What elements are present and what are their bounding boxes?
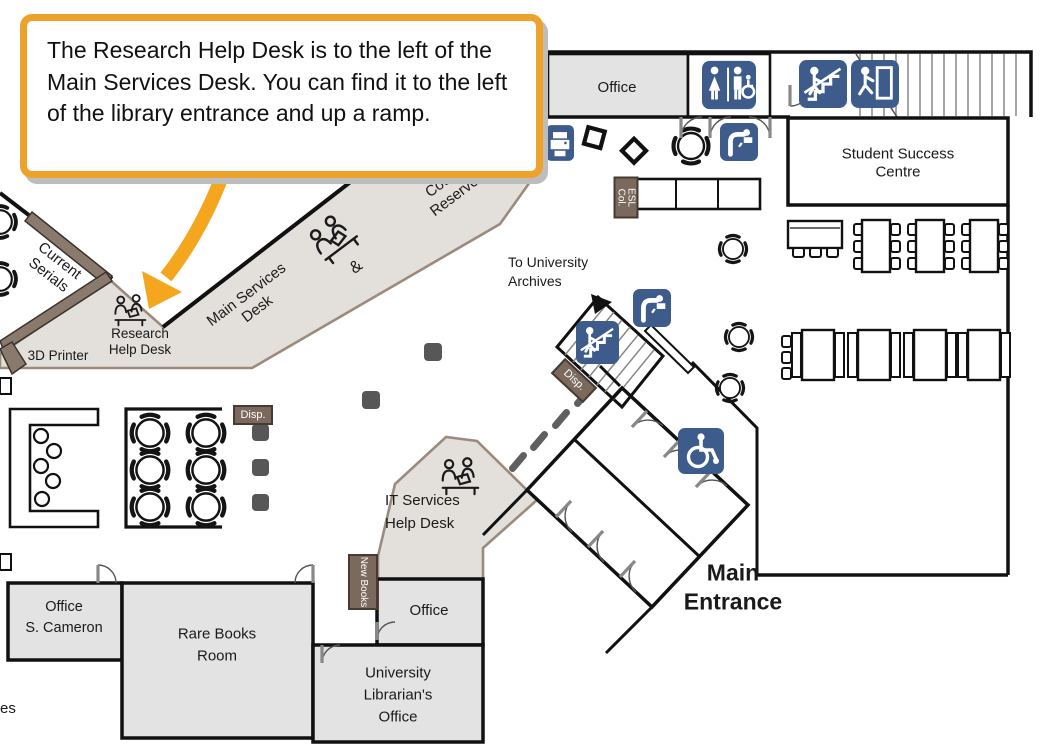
it-services-help-desk-label: IT Services Help Desk: [385, 490, 460, 535]
queue-path-dashes: [513, 391, 589, 469]
round-table: [674, 129, 709, 164]
rare-books-room-label: Rare Books Room: [178, 623, 256, 667]
student-success-centre-label: Student Success Centre: [842, 145, 955, 180]
esl-collection-shelf: [634, 179, 760, 209]
round-table: [0, 206, 16, 238]
wheelchair-accessible-icon: [678, 428, 724, 474]
stairs-icon: [799, 60, 847, 108]
partial-label: es: [0, 700, 16, 718]
round-table: [132, 452, 168, 488]
bench-table: [782, 330, 844, 380]
research-help-desk-label: Research Help Desk: [109, 326, 171, 358]
stairs-icon: [576, 321, 619, 364]
bench-table: [958, 330, 1010, 380]
to-university-archives-label: To University Archives: [508, 253, 588, 291]
office-top-label: Office: [598, 79, 637, 97]
round-table: [132, 415, 168, 451]
round-table: [188, 415, 224, 451]
office-s-cameron-label: Office S. Cameron: [25, 597, 102, 639]
callout-text: The Research Help Desk is to the left of…: [27, 21, 536, 144]
callout-tooltip: The Research Help Desk is to the left of…: [20, 14, 543, 178]
lounge-chair: [584, 127, 605, 148]
university-librarians-office-label: University Librarian's Office: [364, 662, 433, 727]
3d-printer-label: 3D Printer: [28, 348, 89, 364]
six-seat-table: [962, 220, 1008, 272]
drinking-fountain-icon: [720, 123, 758, 161]
counter: [10, 409, 98, 527]
round-table: [132, 489, 168, 525]
counter-stools: [34, 429, 61, 506]
study-tables: [782, 220, 1010, 380]
left-seating-area: [0, 378, 224, 570]
accessible-washroom-icon: [702, 61, 756, 109]
esl-collection-tag: ESL Col.: [614, 177, 639, 219]
new-books-tag: New Books: [348, 554, 378, 610]
main-entrance-label: Main Entrance: [684, 558, 782, 616]
print-station-icon: [546, 125, 574, 161]
drinking-fountain-icon: [633, 289, 671, 327]
bench-table: [904, 330, 956, 380]
office-mid-label: Office: [410, 602, 449, 620]
six-seat-table: [854, 220, 900, 272]
library-floor-plan: Office Student Success Centre To Univers…: [0, 0, 1064, 745]
round-table: [720, 236, 747, 263]
round-table: [0, 263, 16, 295]
round-table: [726, 324, 753, 351]
lounge-chair: [622, 139, 646, 163]
round-table: [717, 375, 744, 402]
six-seat-table: [908, 220, 954, 272]
disp-tables-tag: Disp.: [233, 405, 273, 425]
emergency-exit-icon: [851, 60, 899, 108]
round-table: [188, 489, 224, 525]
round-table: [188, 452, 224, 488]
bench-table: [848, 330, 900, 380]
